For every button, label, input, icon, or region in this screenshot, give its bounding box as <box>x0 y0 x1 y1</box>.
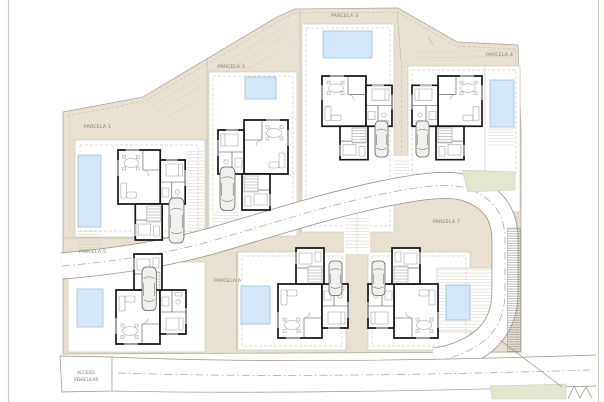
car-parcela-2 <box>220 167 235 211</box>
label-parcela-6: PARCELA 6 <box>214 278 241 284</box>
access-road-label-line1: ACCESO <box>77 370 95 376</box>
pool-parcela-1 <box>78 155 101 227</box>
pool-parcela-5 <box>77 289 103 327</box>
pool-parcela-4 <box>490 80 514 127</box>
access-road-label-line2: VEHICULAR <box>74 377 99 383</box>
car-parcela-3 <box>375 121 388 157</box>
car-parcela-6 <box>329 261 342 296</box>
car-parcela-1 <box>169 198 184 243</box>
pool-parcela-2 <box>245 77 276 99</box>
slope-zigzag-mark <box>568 386 592 399</box>
car-parcela-7 <box>372 261 385 296</box>
pool-parcela-6 <box>241 286 270 324</box>
pool-parcela-7 <box>446 285 470 320</box>
label-parcela-5: PARCELA 5 <box>79 249 106 255</box>
car-parcela-5 <box>142 267 156 311</box>
car-parcela-4 <box>416 121 429 157</box>
pool-parcela-3 <box>323 31 372 58</box>
label-parcela-4: PARCELA 4 <box>486 52 513 58</box>
label-parcela-1: PARCELA 1 <box>84 124 111 130</box>
site-plan-drawing: ACCESO VEHICULAR PARCELA 1 PARCELA 2 PAR… <box>0 0 604 402</box>
label-parcela-2: PARCELA 2 <box>218 64 245 70</box>
label-parcela-3: PARCELA 3 <box>331 13 358 19</box>
label-parcela-7: PARCELA 7 <box>433 219 460 225</box>
retaining-wall-hatch <box>508 228 521 352</box>
site-plan-page: ACCESO VEHICULAR PARCELA 1 PARCELA 2 PAR… <box>0 0 604 402</box>
